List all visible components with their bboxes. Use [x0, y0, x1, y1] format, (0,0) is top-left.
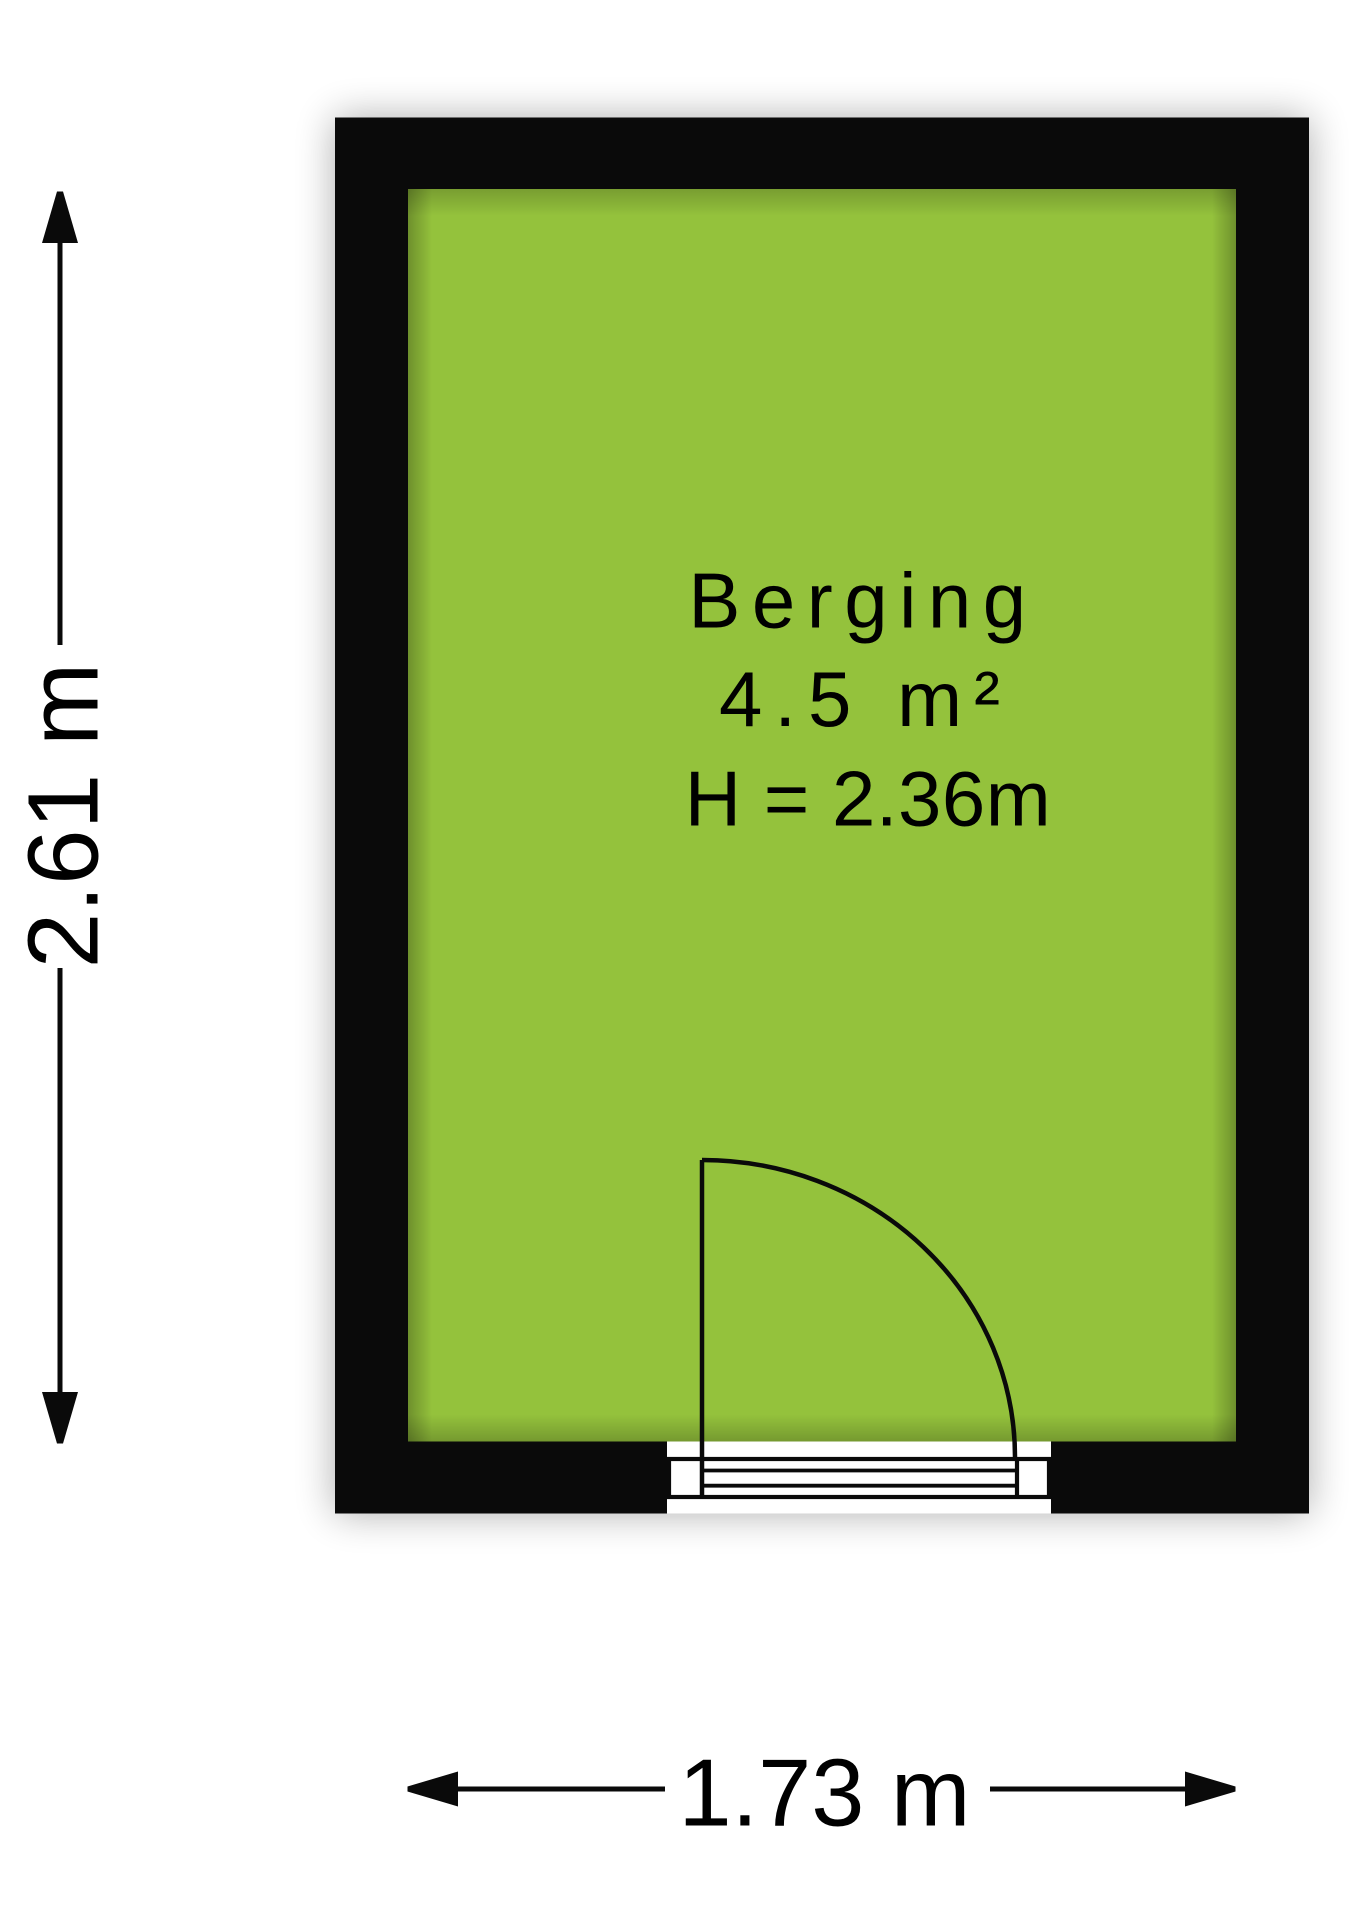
svg-text:1.73 m: 1.73 m: [679, 1741, 971, 1847]
svg-text:H = 2.36m: H = 2.36m: [685, 755, 1052, 843]
svg-text:2.61 m: 2.61 m: [8, 663, 120, 969]
svg-text:4.5 m²: 4.5 m²: [719, 655, 1012, 743]
svg-text:Berging: Berging: [688, 556, 1037, 644]
